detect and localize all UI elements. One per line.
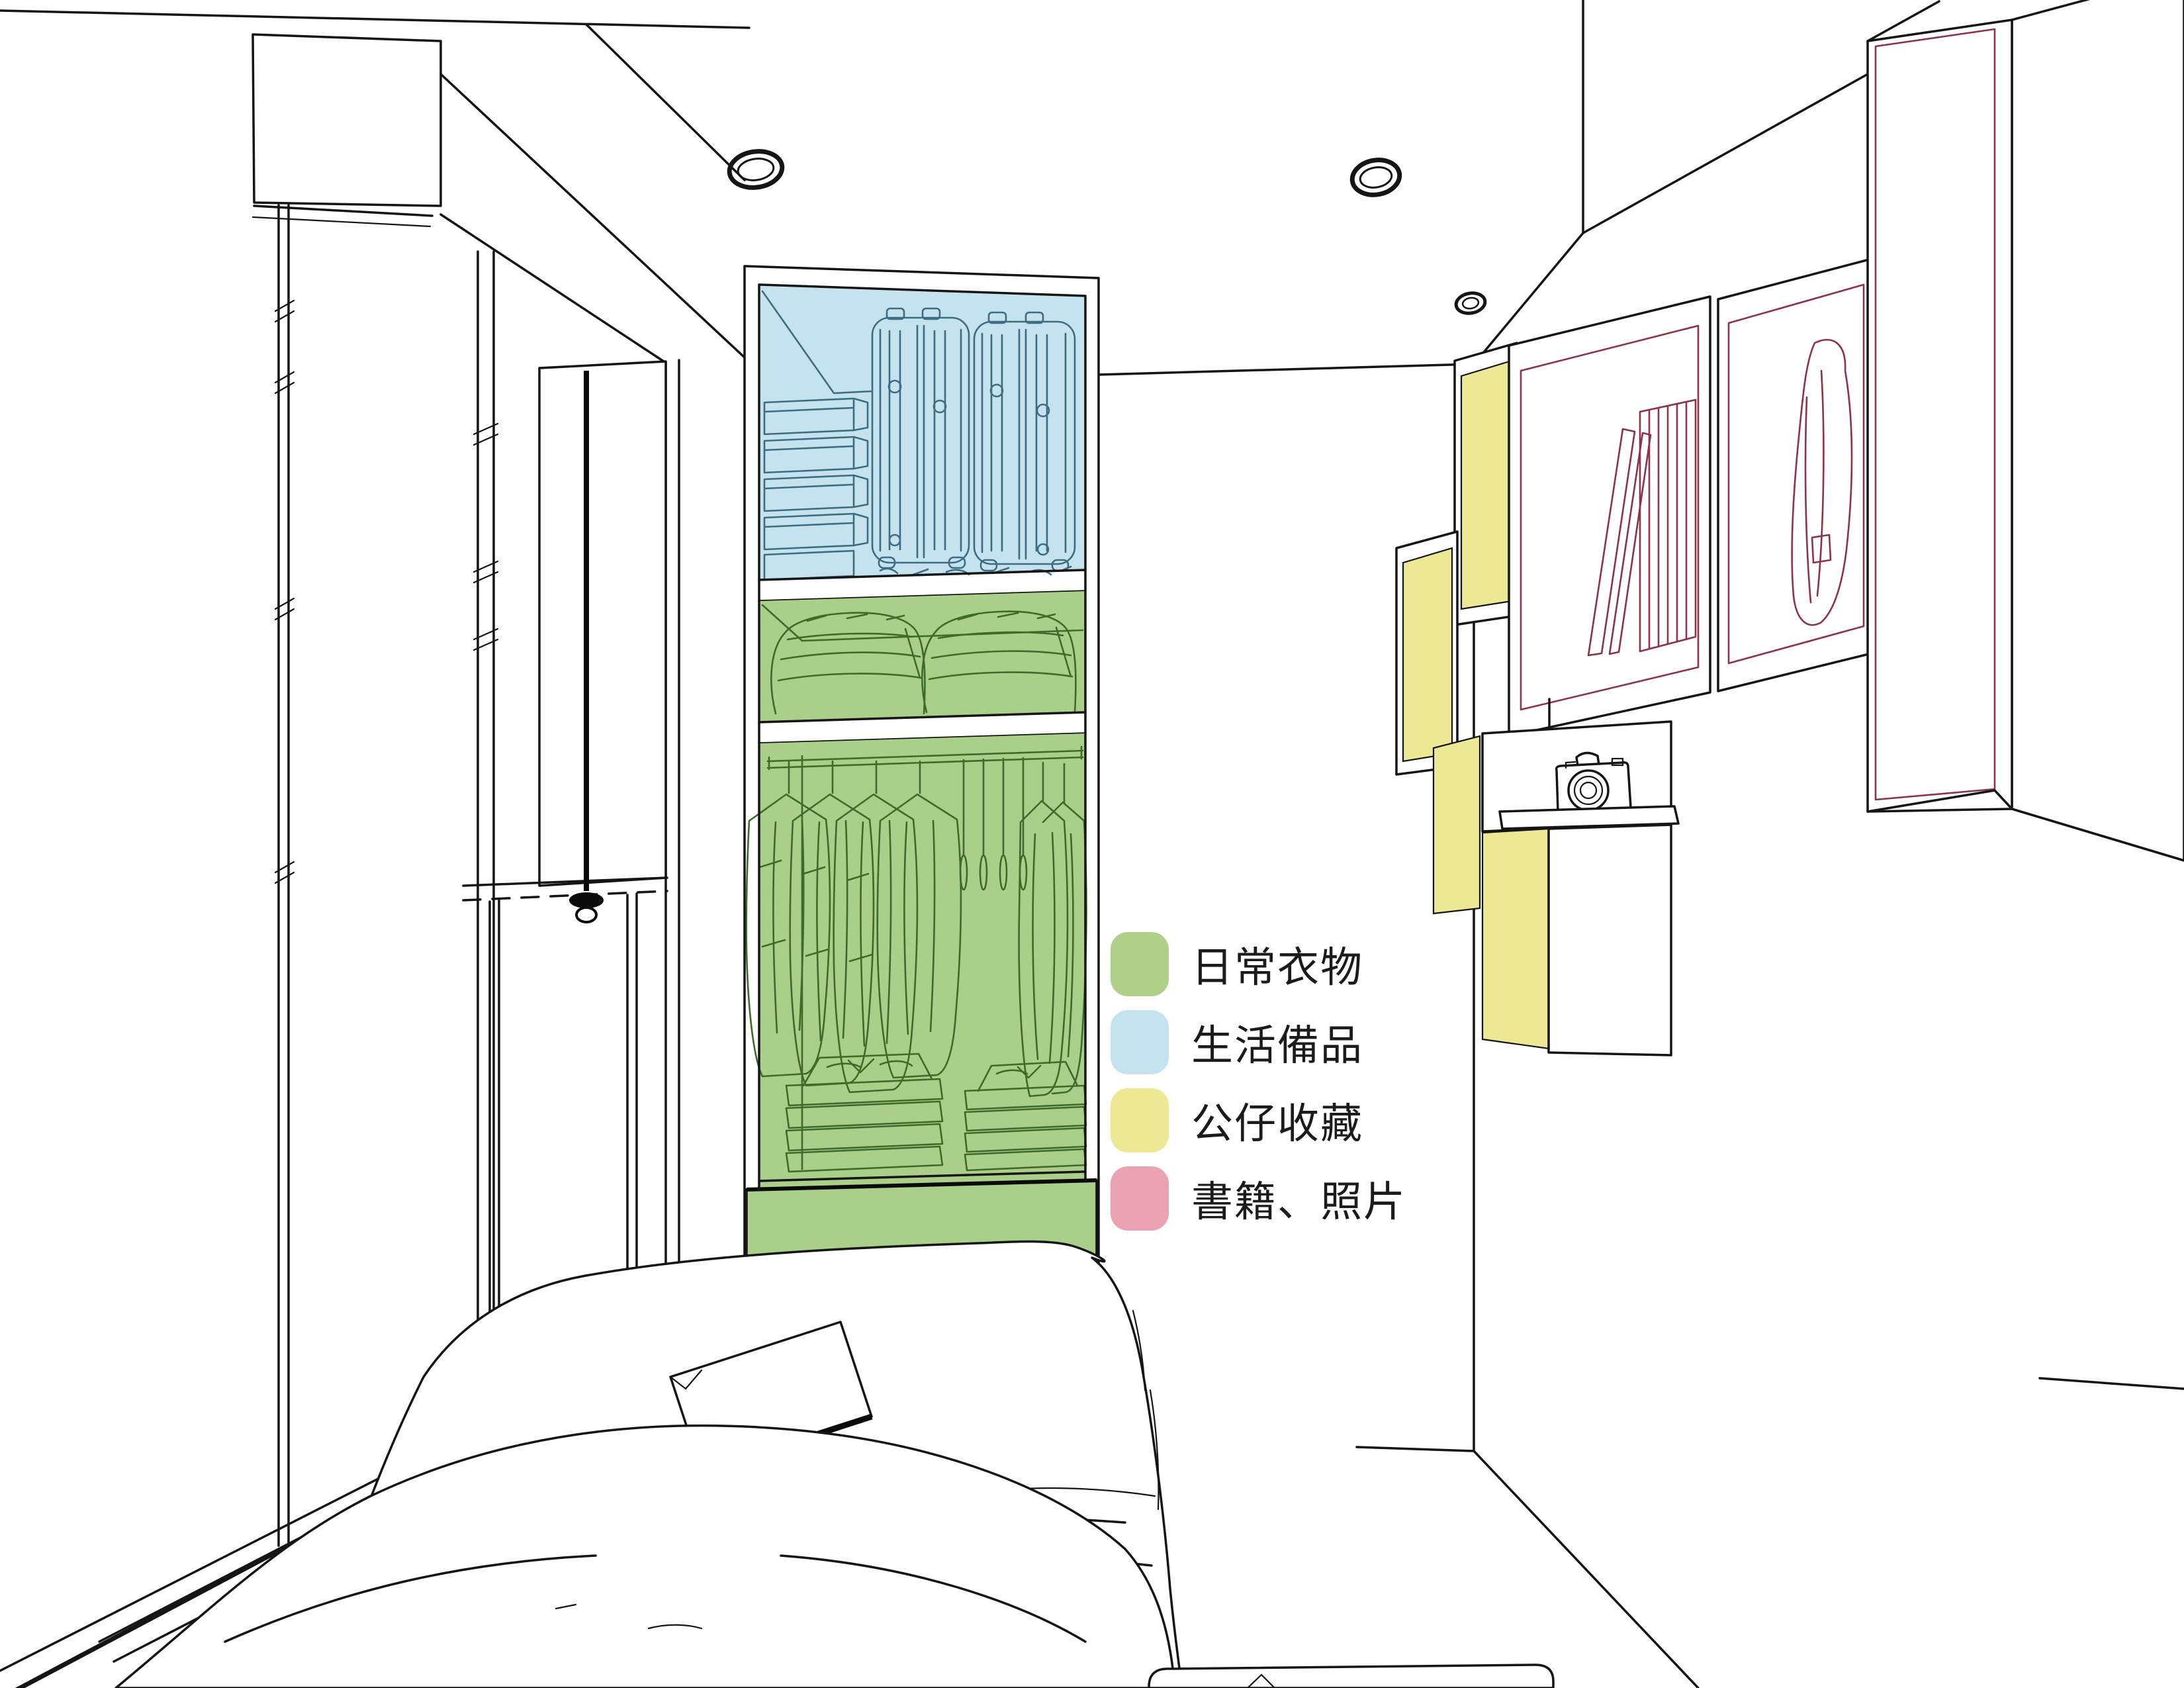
legend-label-books-photos: 書籍、照片 <box>1191 1168 1406 1229</box>
legend: 日常衣物 生活備品 公仔收藏 書籍、照片 <box>1111 932 1406 1231</box>
display-box-yellow <box>1396 532 1457 774</box>
book-shelf-pink <box>1509 297 1710 736</box>
legend-swatch-daily-supplies <box>1111 1010 1169 1074</box>
room-illustration <box>0 0 2184 1688</box>
legend-item-figure-collection: 公仔收藏 <box>1111 1088 1406 1152</box>
ceiling-light-icon <box>1455 291 1487 315</box>
camera-icon <box>1557 753 1631 816</box>
wardrobe-zone-duvets <box>759 591 1085 722</box>
tall-cabinet <box>1868 0 2184 861</box>
interior-rendering-page: 日常衣物 生活備品 公仔收藏 書籍、照片 <box>0 0 2184 1688</box>
curtain-pelmet <box>253 34 441 226</box>
legend-swatch-daily-clothes <box>1111 932 1169 996</box>
legend-item-daily-clothes: 日常衣物 <box>1111 932 1406 996</box>
wardrobe-zone-supplies <box>759 286 1085 580</box>
step-platform <box>1149 1665 1553 1688</box>
legend-label-daily-clothes: 日常衣物 <box>1191 934 1363 994</box>
right-wall-units <box>1396 0 2184 1055</box>
legend-swatch-books-photos <box>1111 1166 1169 1231</box>
ceiling-light-icon <box>727 148 785 191</box>
wardrobe <box>745 266 1099 1337</box>
ceiling <box>0 11 1486 316</box>
legend-item-daily-supplies: 生活備品 <box>1111 1010 1406 1074</box>
legend-item-books-photos: 書籍、照片 <box>1111 1166 1406 1231</box>
camera-shelf-unit <box>1433 699 1678 1055</box>
display-box-yellow <box>1455 343 1517 625</box>
photo-shelf-pink <box>1718 258 1874 691</box>
legend-label-figure-collection: 公仔收藏 <box>1191 1090 1363 1150</box>
legend-label-daily-supplies: 生活備品 <box>1191 1012 1363 1072</box>
wardrobe-zone-hanging <box>747 733 1087 1190</box>
legend-swatch-figure-collection <box>1111 1088 1169 1152</box>
bed <box>116 1242 1182 1688</box>
ceiling-light-icon <box>1349 156 1402 199</box>
